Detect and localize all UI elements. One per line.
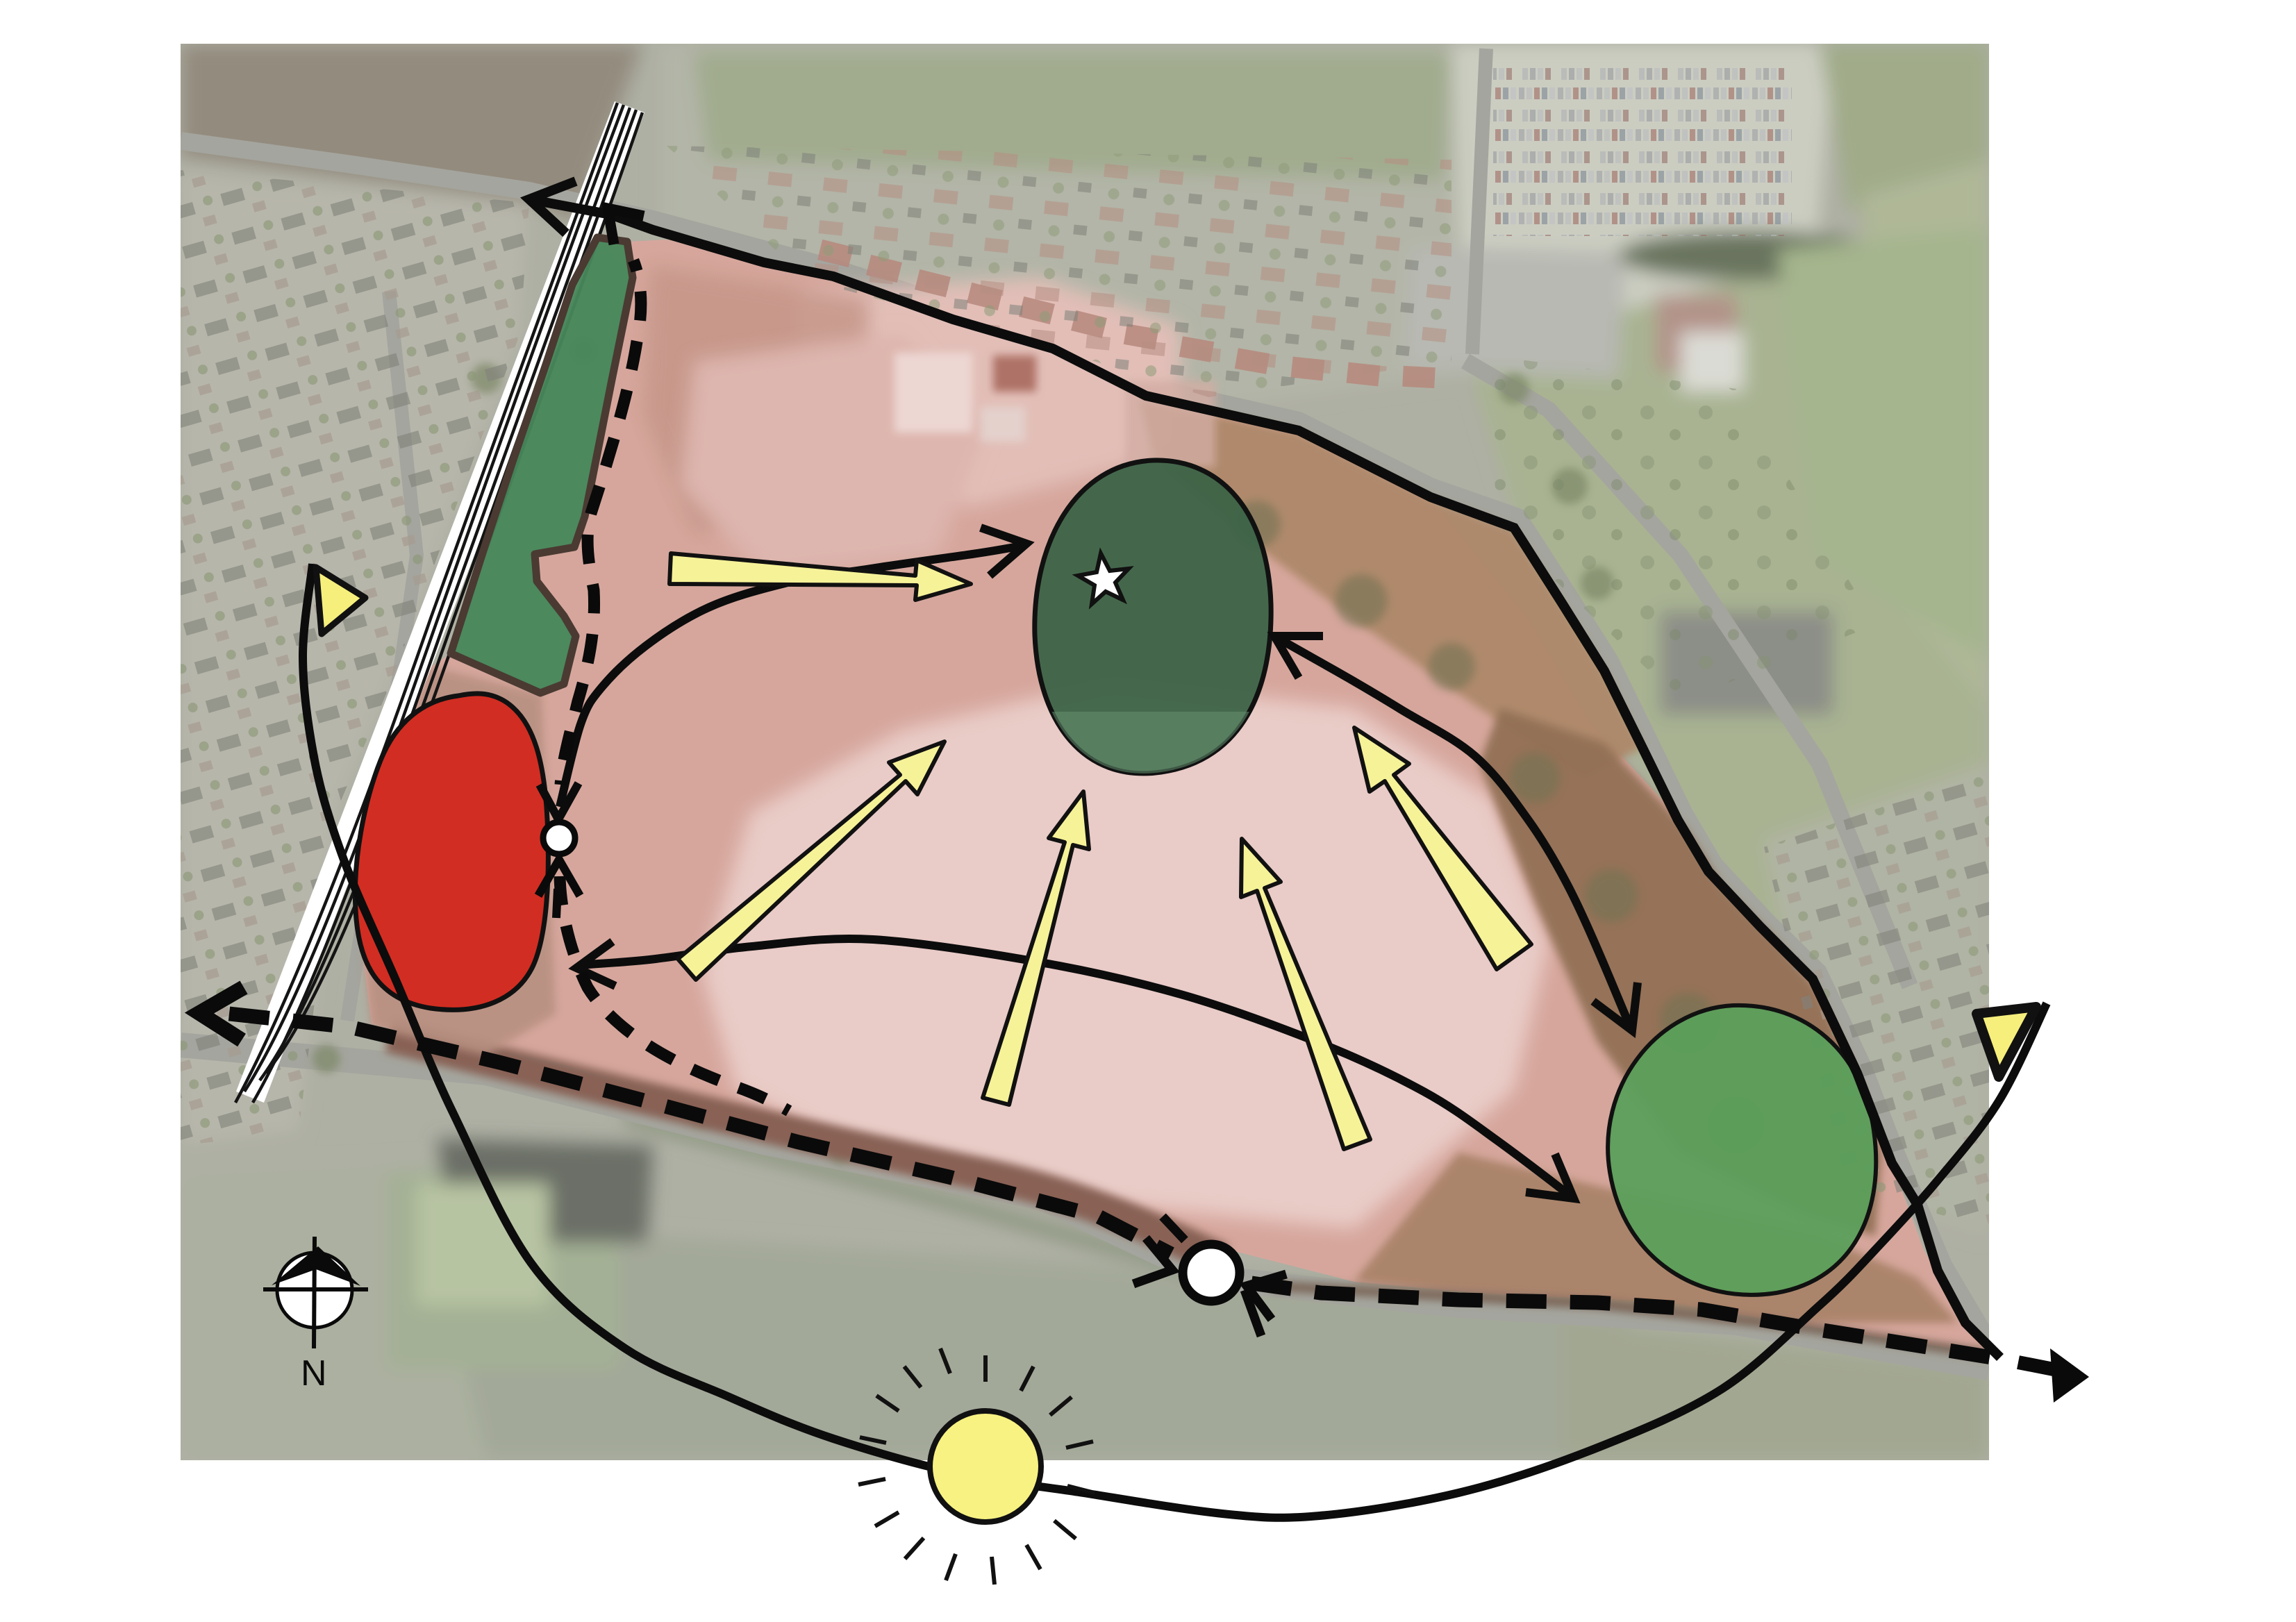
- svg-text:N: N: [301, 1353, 327, 1394]
